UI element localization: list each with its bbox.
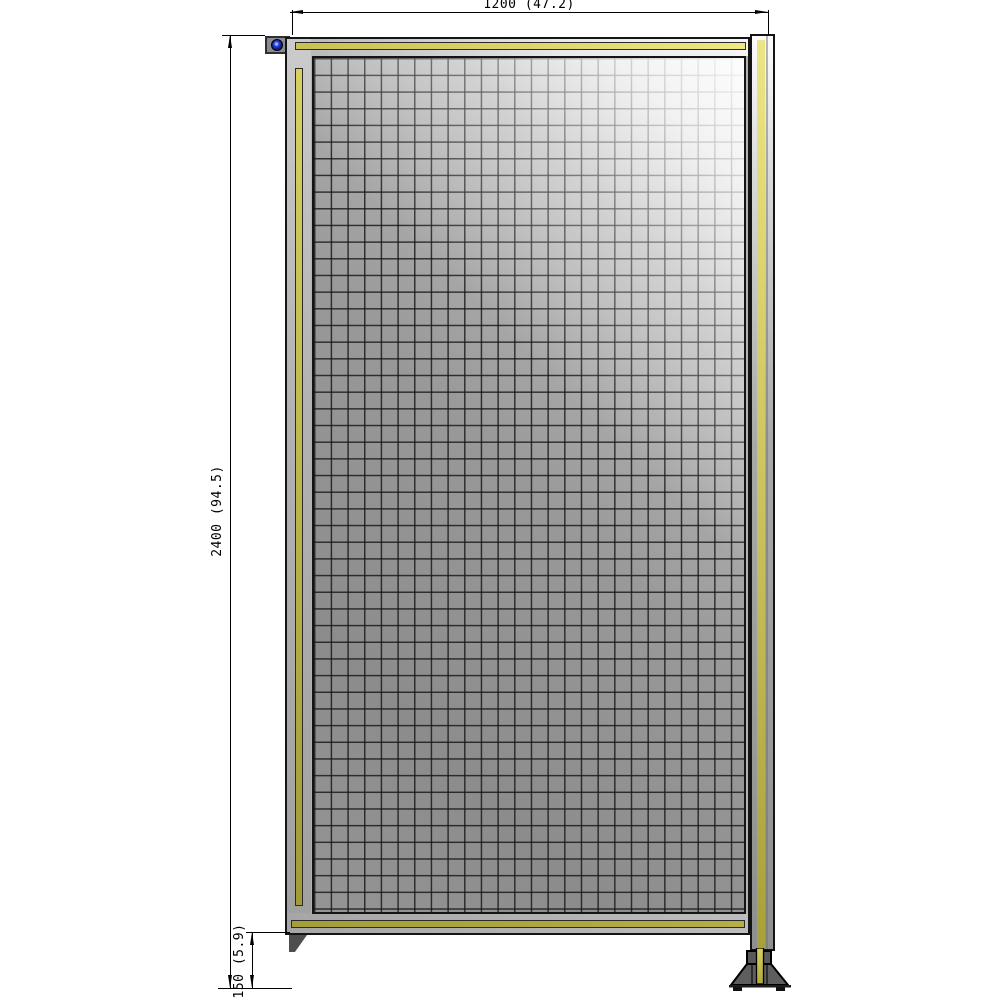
arrowhead-down-small — [250, 975, 254, 988]
yellow-stripe-left — [295, 68, 303, 906]
width-dimension-label: 1200 (47.2) — [290, 0, 768, 12]
yellow-stripe-top — [295, 42, 746, 50]
post-groove-line — [766, 36, 768, 949]
yellow-stripe-bottom — [291, 920, 745, 928]
width-dimension-line — [290, 12, 768, 13]
floor-anchor-foot — [725, 948, 795, 993]
arrowhead-up — [228, 35, 232, 48]
height-dimension-line — [230, 35, 231, 988]
corner-gusset — [289, 935, 307, 952]
extension-line-width-left — [292, 10, 293, 35]
extension-line-width-right — [768, 10, 769, 35]
floor-reference-line — [218, 988, 292, 989]
yellow-stripe-post — [757, 40, 765, 948]
technical-drawing-canvas: 1200 (47.2) 2400 (94.5) 150 (5.9) — [0, 0, 1000, 1000]
clearance-dimension-label: 150 (5.9) — [233, 924, 247, 999]
height-dimension-label: 2400 (94.5) — [211, 465, 225, 557]
arrowhead-up-small — [250, 932, 254, 945]
bolt-head-icon — [271, 39, 283, 51]
foot-yellow-slot — [757, 948, 764, 984]
wire-mesh-panel — [312, 56, 746, 914]
foot-base-plate — [729, 985, 791, 988]
